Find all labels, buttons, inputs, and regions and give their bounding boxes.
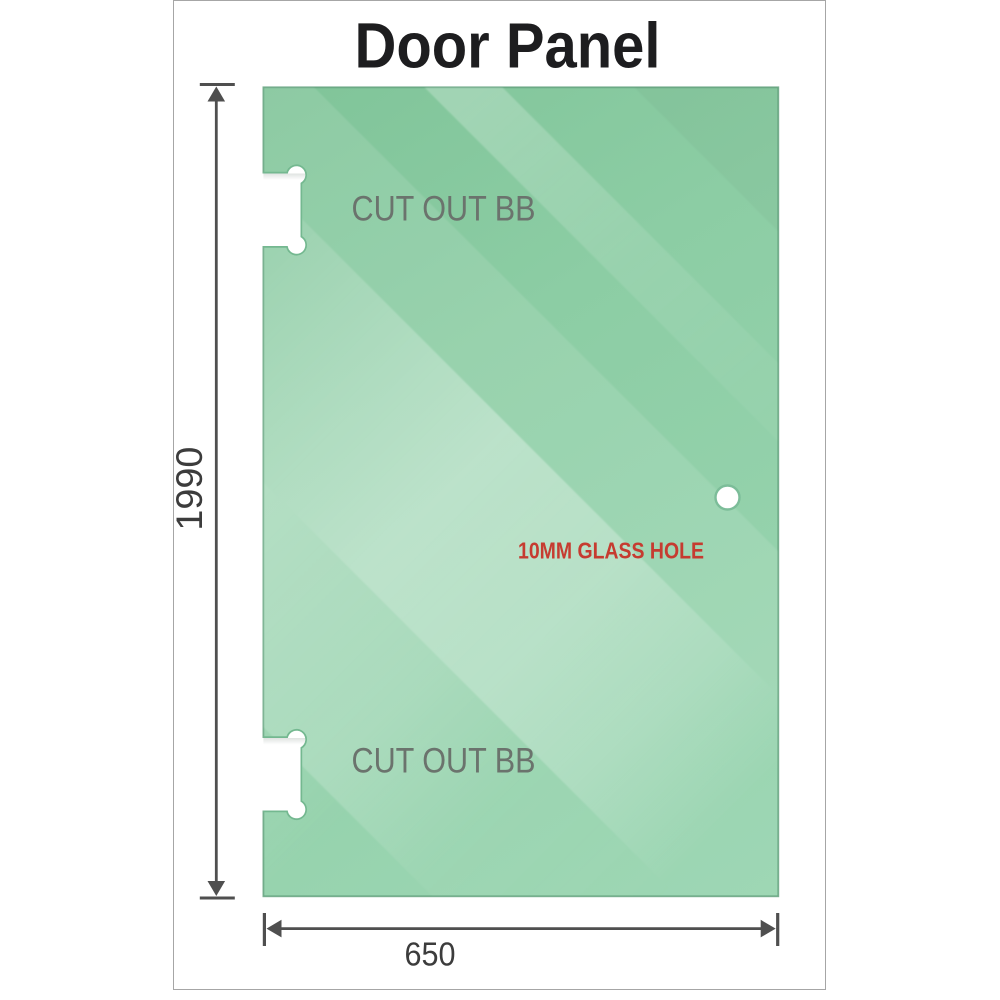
svg-text:CUT OUT BB: CUT OUT BB <box>352 742 536 781</box>
svg-text:1990: 1990 <box>169 447 210 531</box>
svg-text:CUT OUT BB: CUT OUT BB <box>352 190 536 229</box>
svg-text:10MM GLASS HOLE: 10MM GLASS HOLE <box>518 538 704 564</box>
svg-text:Door Panel: Door Panel <box>355 10 661 82</box>
svg-text:650: 650 <box>405 935 456 972</box>
